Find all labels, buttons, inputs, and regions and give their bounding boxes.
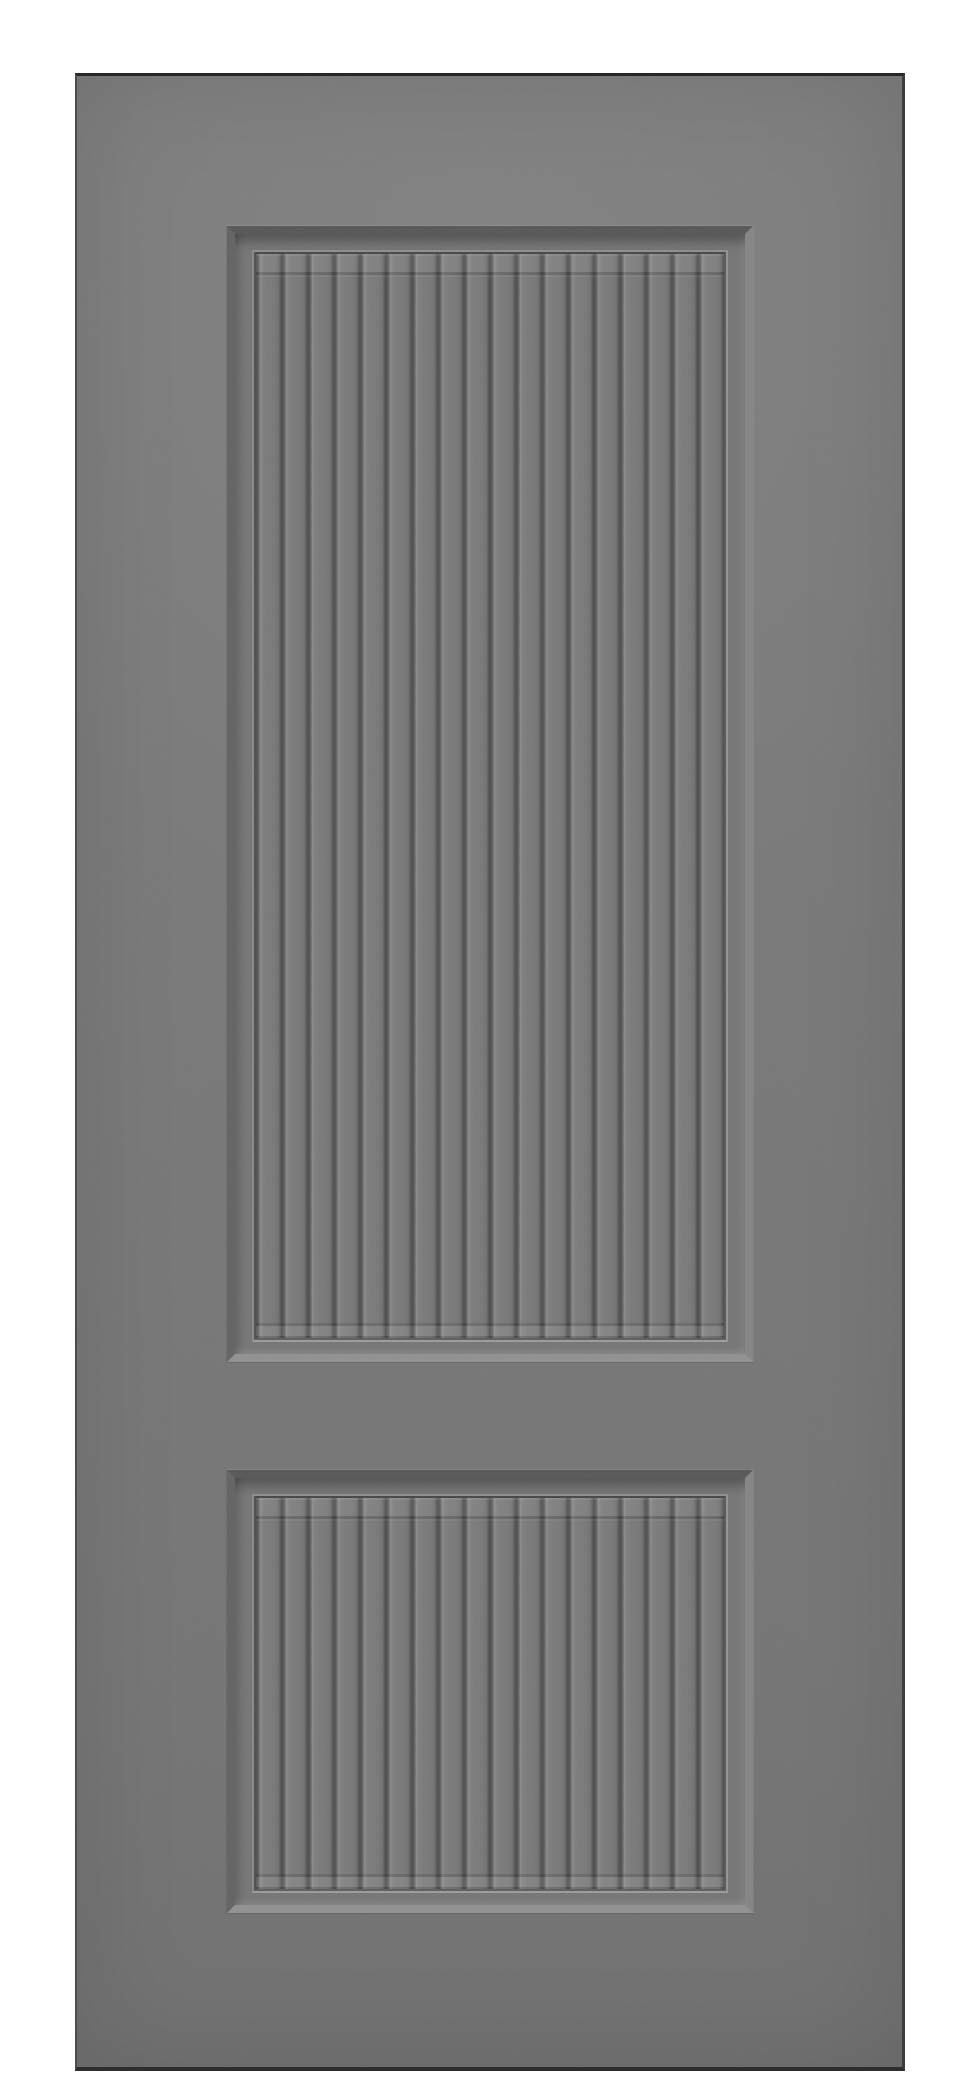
upper-recessed-panel [227, 226, 753, 1362]
lower-fluted-texture [254, 1496, 726, 1891]
upper-panel-floor [235, 234, 745, 1354]
door-slab [75, 73, 905, 2071]
lower-flute-frame [252, 1494, 728, 1893]
upper-flute-frame [252, 250, 728, 1342]
lower-panel-floor [235, 1478, 745, 1905]
lower-recessed-panel [227, 1470, 753, 1913]
upper-fluted-texture [254, 252, 726, 1340]
product-image-canvas [0, 0, 980, 2100]
